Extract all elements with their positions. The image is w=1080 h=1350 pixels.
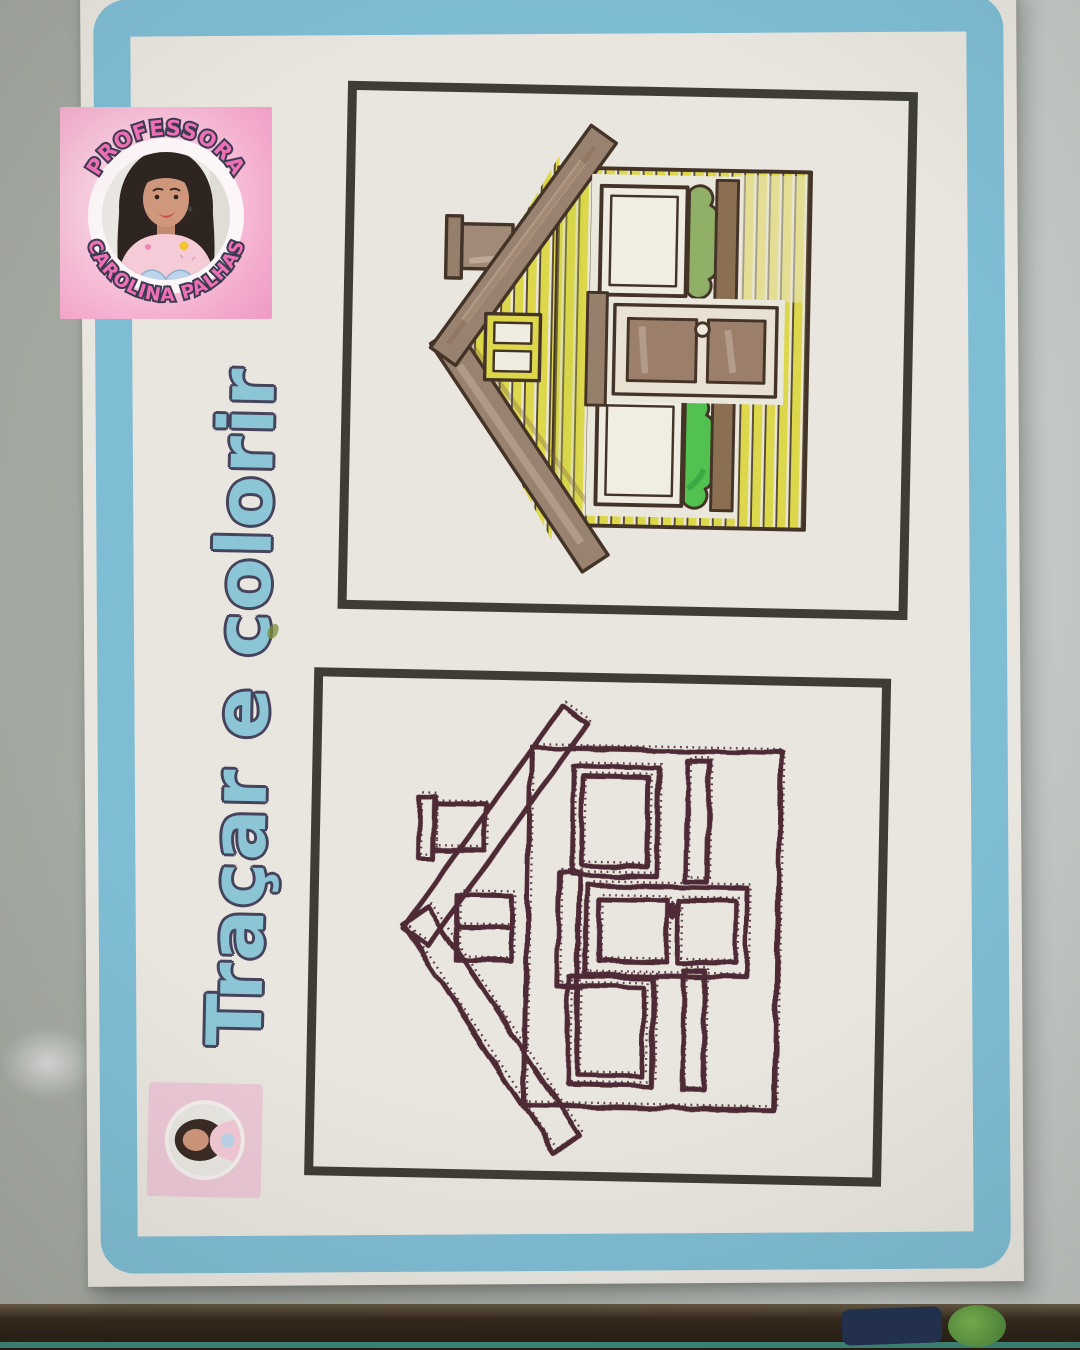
mini-logo xyxy=(147,1082,263,1198)
worksheet-title: Traçar e colorir xyxy=(190,366,293,1047)
background-object-navy xyxy=(841,1306,942,1345)
attic-window xyxy=(485,313,541,380)
right-window xyxy=(590,173,743,308)
traced-marker-lines xyxy=(399,702,783,1156)
door xyxy=(586,292,786,409)
trace-house-drawing xyxy=(387,673,817,1186)
door-knob xyxy=(695,322,709,336)
mini-portrait xyxy=(164,1099,246,1181)
window-box xyxy=(711,390,735,511)
teacher-badge: Educação Infantil PROFESSORA CAROLINA PA… xyxy=(60,107,272,319)
window-box xyxy=(715,180,739,301)
photo-of-worksheet: Traçar e colorir xyxy=(0,0,1080,1350)
background-object-green xyxy=(948,1305,1006,1347)
colored-house-drawing xyxy=(416,92,846,605)
